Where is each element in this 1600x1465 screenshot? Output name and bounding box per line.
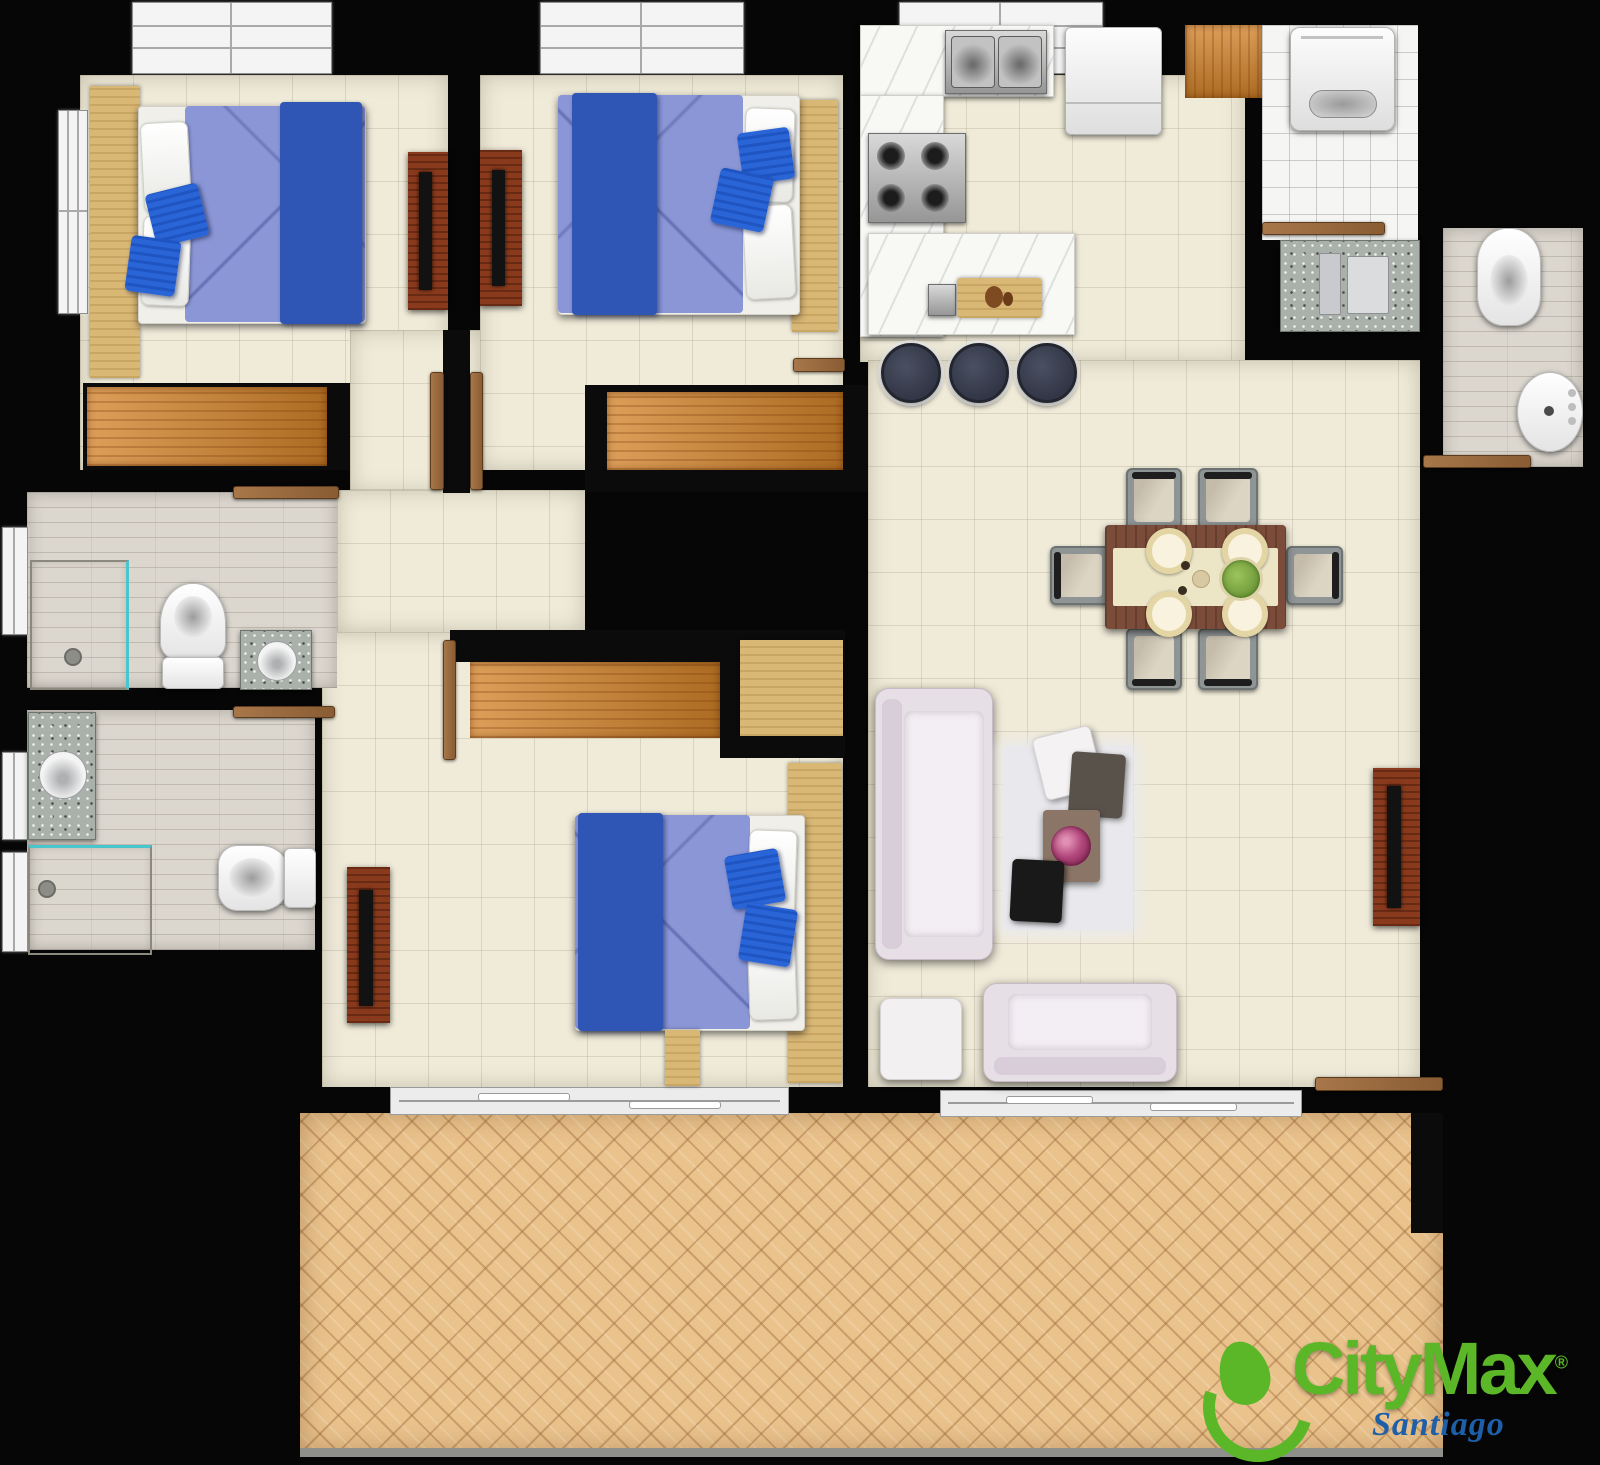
dining-chair: [1126, 628, 1182, 690]
cutting-board: [957, 278, 1042, 318]
kitchen-cabinet: [1185, 25, 1262, 98]
tv-1: [419, 172, 432, 290]
wall-door-stub: [443, 330, 470, 493]
vanity-2: [28, 712, 96, 840]
side-table: [880, 998, 962, 1080]
bathroom-2-window-b: [2, 852, 28, 952]
bed-3-bench: [665, 1030, 700, 1086]
vanity-1: [240, 630, 312, 690]
bed-3-blanket: [578, 813, 663, 1031]
closet-3-lower-wall: [720, 736, 845, 758]
bar-stool: [949, 343, 1009, 403]
bed-2-blanket: [572, 93, 657, 315]
master-sliding-door: [390, 1087, 789, 1115]
bedroom-1-door: [430, 372, 444, 490]
bed-3-accent-pillow: [738, 902, 798, 967]
dining-chair: [1126, 468, 1182, 530]
bathroom-3-door: [1423, 455, 1531, 468]
dining-chair: [1198, 468, 1258, 530]
bathroom-1-door: [233, 486, 339, 499]
floor-cushion-brown: [1068, 751, 1126, 819]
floor-plan: CityMax® Santiago: [0, 0, 1600, 1465]
flower-centerpiece: [1051, 826, 1091, 866]
floor-cushion-black: [1009, 859, 1064, 924]
bed-1-headboard: [90, 86, 140, 378]
bedroom-1-window: [132, 2, 332, 74]
bathroom-2-window-a: [2, 752, 28, 840]
bed-1-accent-pillow: [124, 235, 181, 297]
toilet-1: [160, 583, 226, 661]
bedroom-2-door: [470, 372, 483, 490]
terrace-door: [1315, 1077, 1443, 1091]
brand-city-label: Santiago: [1372, 1406, 1505, 1444]
drain-icon: [38, 880, 56, 898]
brand-text: CityMax: [1292, 1327, 1555, 1410]
toilet-3: [1477, 228, 1541, 326]
drain-icon: [64, 648, 82, 666]
laundry-door: [1262, 222, 1385, 235]
refrigerator: [1065, 27, 1162, 135]
registered-mark: ®: [1555, 1352, 1568, 1372]
glass: [1192, 570, 1210, 588]
salad-bowl: [1219, 557, 1263, 601]
toilet-2: [218, 845, 292, 911]
closet-3: [470, 662, 720, 738]
closet-3-divider: [720, 636, 740, 740]
knife-block: [928, 284, 956, 316]
closet-3-corner: [740, 640, 843, 736]
plate: [1146, 591, 1192, 637]
bar-stool: [1017, 343, 1077, 403]
sofa-long: [875, 688, 993, 960]
laundry-counter: [1280, 240, 1420, 332]
bed-2-accent-pillow: [710, 167, 774, 233]
bathroom-2-door: [233, 706, 335, 718]
toilet-1-tank: [162, 657, 224, 689]
living-sliding-door: [940, 1090, 1302, 1117]
bedroom-2-entry-door: [793, 358, 845, 372]
condiment: [1178, 586, 1187, 595]
tv-3: [359, 890, 373, 1006]
tv-living: [1387, 786, 1401, 908]
dining-chair: [1198, 628, 1258, 690]
bedroom-1-side-window: [58, 110, 88, 314]
shower-1: [30, 560, 129, 690]
toilet-2-tank: [284, 848, 316, 908]
sofa-short: [983, 983, 1177, 1082]
citymax-wordmark: CityMax®: [1292, 1326, 1568, 1411]
bar-stool: [881, 343, 941, 403]
bed-1-blanket: [280, 102, 362, 324]
shower-2: [28, 845, 152, 955]
washing-machine: [1290, 27, 1395, 131]
dining-chair: [1286, 546, 1343, 605]
bed-3-accent-pillow: [724, 848, 787, 911]
closet-1: [87, 387, 327, 466]
hallway-floor: [337, 490, 585, 632]
closet-2: [607, 392, 843, 470]
terrace-wall-pillar: [1411, 1113, 1443, 1233]
bedroom-2-window: [540, 2, 744, 74]
sink-3: [1517, 372, 1583, 452]
kitchen-sink: [945, 30, 1047, 94]
tv-2: [492, 170, 505, 286]
master-bedroom-door: [443, 640, 456, 760]
condiment: [1181, 561, 1190, 570]
stove: [868, 133, 966, 223]
bathroom-1-window: [2, 527, 28, 635]
dining-chair: [1050, 546, 1110, 605]
